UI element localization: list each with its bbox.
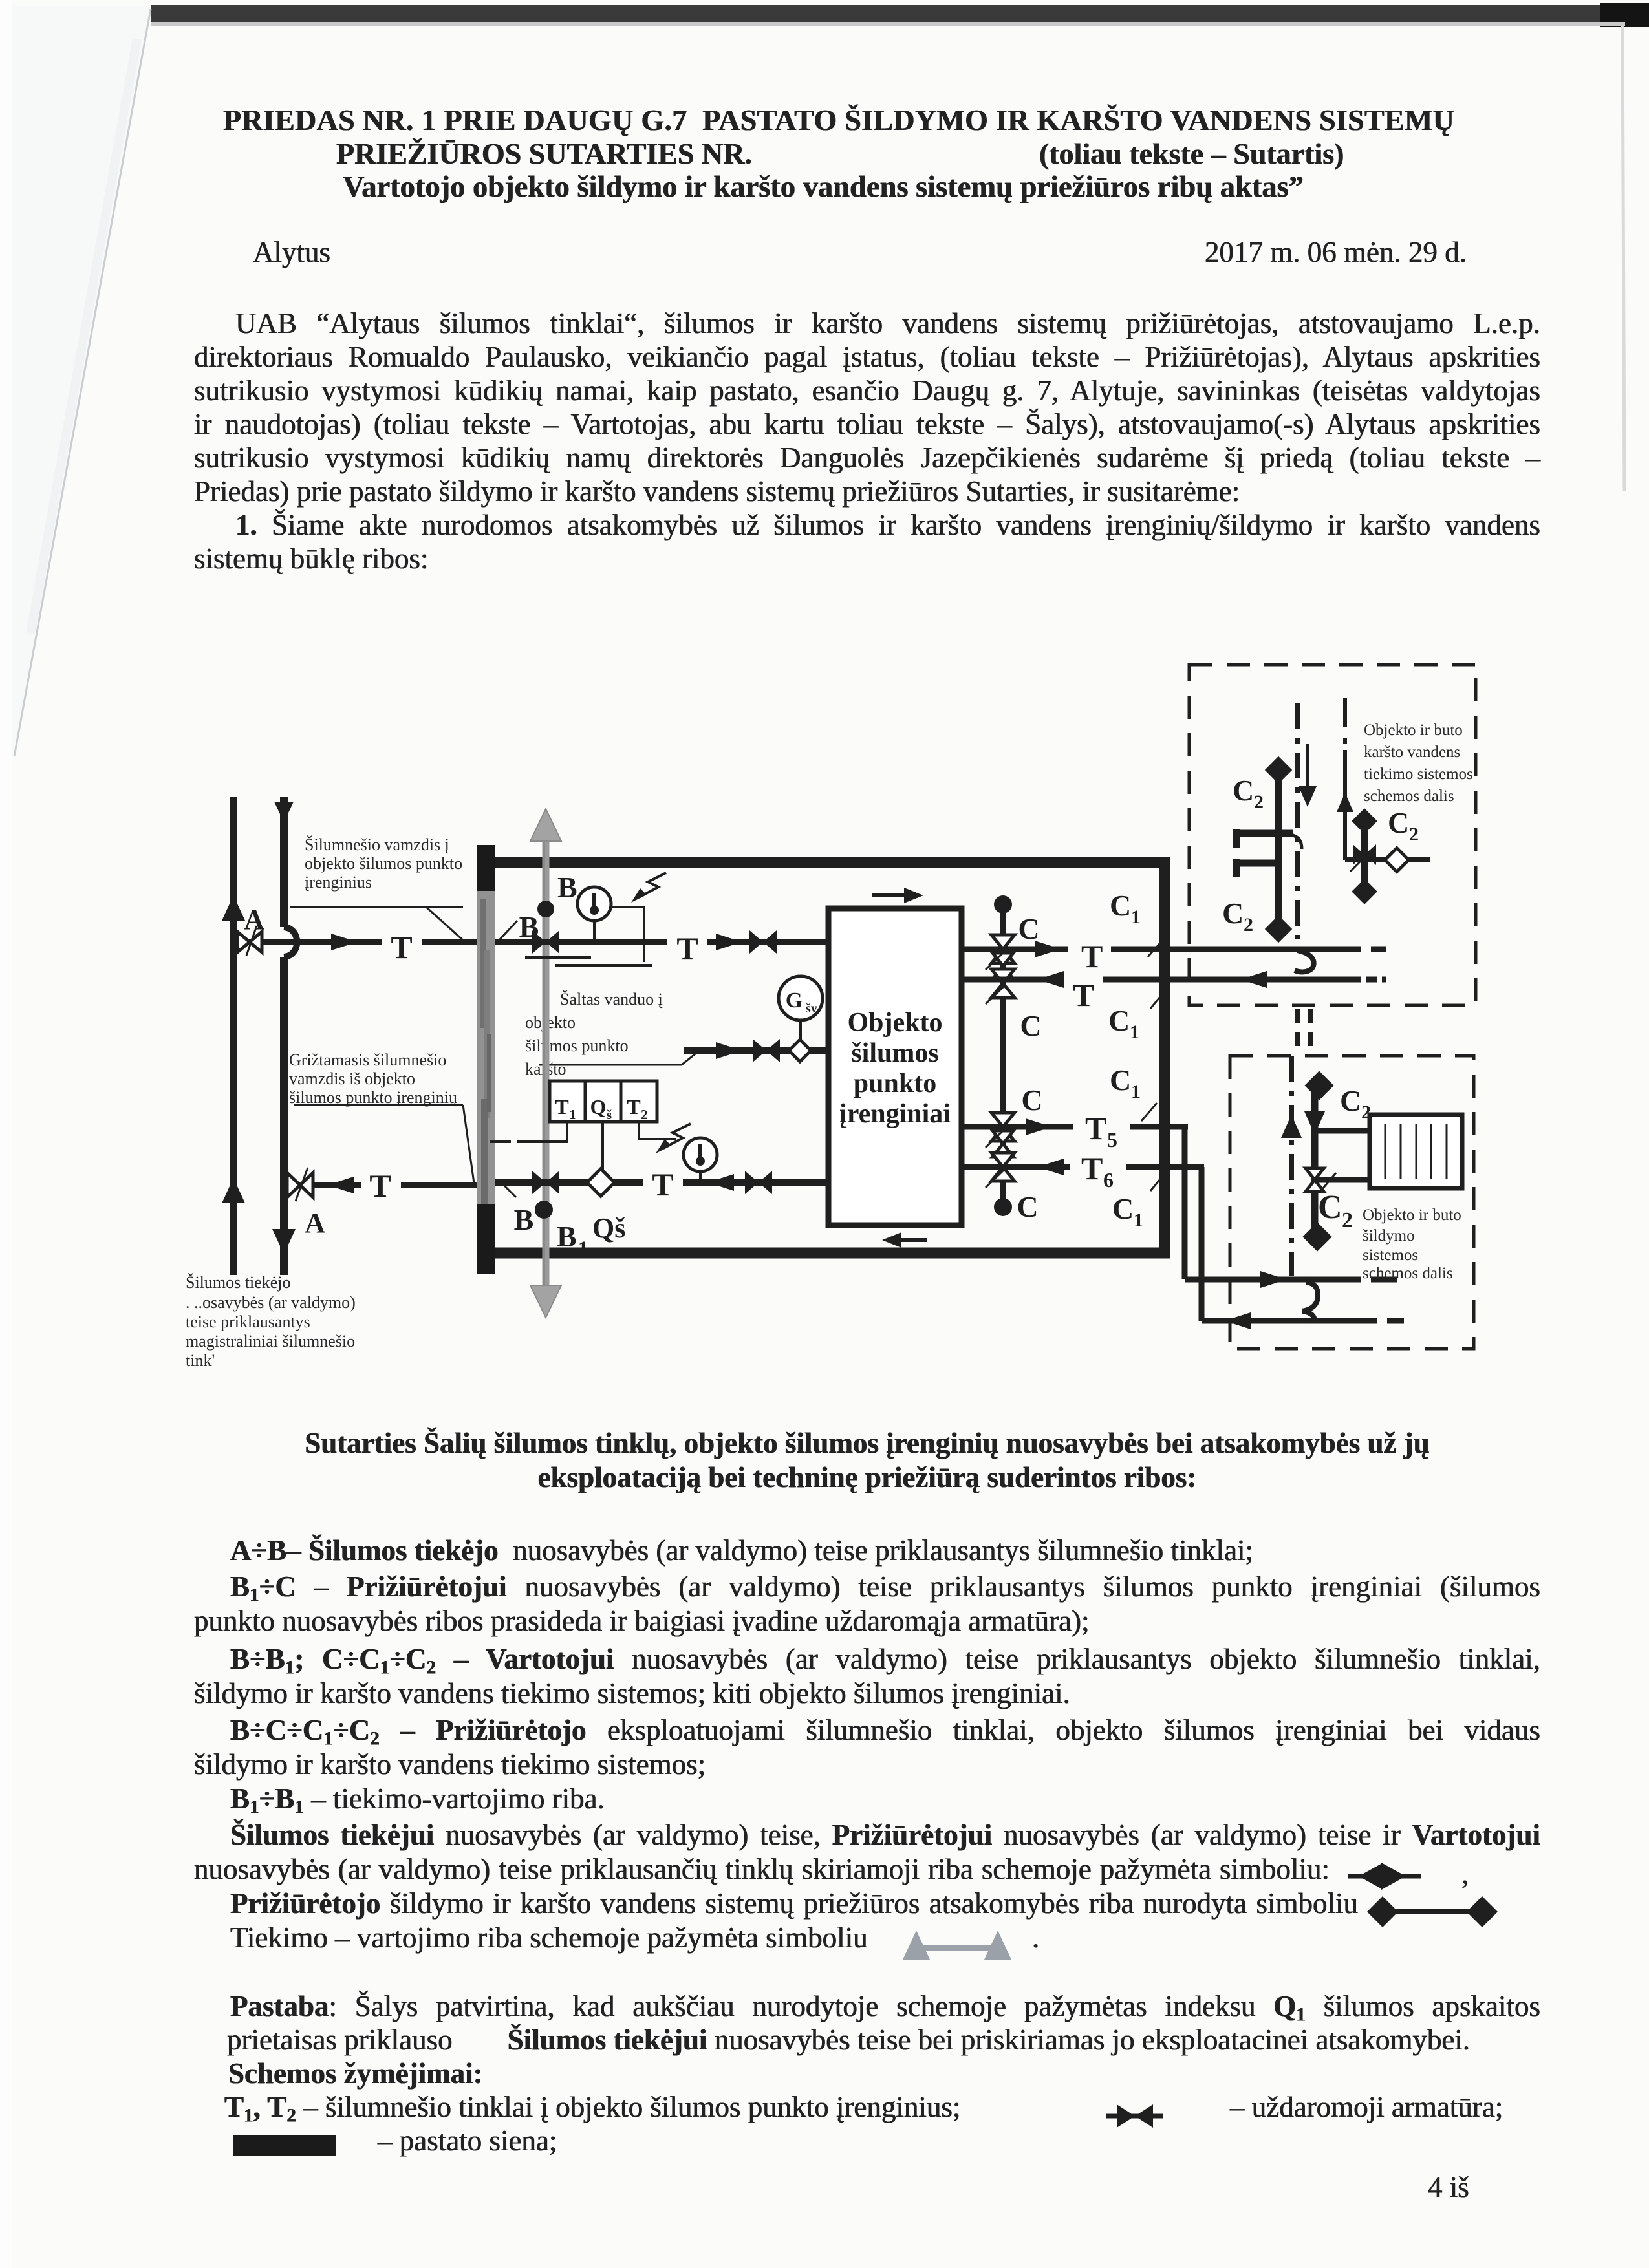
svg-text:2: 2 (1254, 791, 1264, 813)
svg-text:Šilumnešio vamzdis į: Šilumnešio vamzdis į (305, 835, 449, 854)
svg-text:5: 5 (1107, 1128, 1117, 1151)
svg-text:tink': tink' (186, 1351, 215, 1370)
svg-text:C: C (1318, 1189, 1342, 1226)
svg-text:T: T (676, 930, 698, 967)
svg-text:C: C (1233, 774, 1254, 807)
svg-text:įrenginius: įrenginius (305, 873, 372, 892)
svg-text:T: T (627, 1095, 640, 1118)
svg-text:Šilumos tiekėjo: Šilumos tiekėjo (186, 1273, 291, 1292)
svg-text:C: C (1222, 897, 1244, 930)
svg-text:šildymo: šildymo (1363, 1227, 1415, 1245)
svg-text:B: B (557, 871, 577, 904)
svg-text:šv: šv (806, 1001, 817, 1016)
svg-text:1: 1 (569, 1107, 576, 1122)
svg-text:vamzdis iš objekto: vamzdis iš objekto (289, 1069, 415, 1088)
svg-text:2: 2 (1409, 824, 1419, 845)
svg-text:. ..osavybės (ar valdymo): . ..osavybės (ar valdymo) (186, 1293, 356, 1312)
svg-text:tiekimo sistemos: tiekimo sistemos (1364, 765, 1473, 783)
svg-text:T: T (1081, 938, 1103, 974)
svg-text:įrenginiai: įrenginiai (839, 1099, 951, 1129)
svg-text:šilumos: šilumos (851, 1038, 938, 1068)
svg-text:C: C (1110, 1064, 1131, 1097)
svg-text:šilumos punkto: šilumos punkto (525, 1036, 629, 1055)
svg-text:2: 2 (1361, 1102, 1371, 1123)
svg-text:A: A (305, 1207, 325, 1239)
svg-text:1: 1 (1130, 1022, 1139, 1043)
svg-text:C: C (1108, 1004, 1130, 1037)
svg-text:Objekto: Objekto (848, 1008, 943, 1038)
svg-text:2: 2 (1244, 914, 1253, 936)
svg-text:schemos dalis: schemos dalis (1363, 1265, 1453, 1282)
svg-text:C: C (1340, 1084, 1361, 1117)
svg-text:magistraliniai šilumnešio: magistraliniai šilumnešio (186, 1332, 355, 1351)
svg-text:T: T (1081, 1150, 1103, 1186)
svg-text:1: 1 (1134, 1210, 1143, 1231)
svg-text:schemos dalis: schemos dalis (1364, 787, 1454, 805)
svg-text:punkto: punkto (854, 1069, 936, 1098)
svg-text:C: C (1017, 1190, 1038, 1223)
svg-text:Grižtamasis šilumnešio: Grižtamasis šilumnešio (289, 1051, 446, 1069)
svg-text:C: C (1388, 806, 1409, 839)
svg-text:T: T (555, 1095, 568, 1118)
svg-text:teise priklausantys: teise priklausantys (186, 1312, 310, 1331)
svg-text:Q: Q (590, 1095, 607, 1118)
svg-text:C: C (1110, 889, 1131, 922)
svg-text:Qš: Qš (592, 1212, 625, 1244)
svg-text:1: 1 (1131, 1081, 1141, 1102)
svg-text:T: T (369, 1168, 391, 1204)
svg-text:2: 2 (641, 1107, 648, 1122)
svg-text:B: B (514, 1203, 534, 1236)
svg-text:objekto: objekto (525, 1013, 576, 1032)
svg-text:C: C (1018, 912, 1039, 945)
svg-text:1: 1 (578, 1237, 588, 1259)
svg-text:2: 2 (1342, 1208, 1353, 1232)
svg-text:Šaltas vanduo į: Šaltas vanduo į (560, 990, 663, 1009)
svg-text:C: C (1112, 1192, 1134, 1225)
svg-text:T: T (652, 1166, 673, 1203)
svg-text:Objekto ir buto: Objekto ir buto (1364, 722, 1463, 739)
svg-text:C: C (1021, 1084, 1042, 1117)
svg-text:G: G (786, 989, 803, 1012)
svg-text:T: T (1073, 977, 1094, 1013)
svg-text:T: T (391, 929, 412, 965)
svg-text:B: B (557, 1220, 577, 1253)
svg-text:karšto vandens: karšto vandens (1364, 744, 1460, 761)
svg-text:A: A (244, 904, 264, 936)
svg-text:C: C (1020, 1009, 1041, 1042)
svg-text:Objekto ir buto: Objekto ir buto (1363, 1206, 1461, 1224)
svg-text:š: š (607, 1107, 612, 1122)
svg-text:6: 6 (1103, 1168, 1114, 1192)
svg-text:B: B (519, 910, 539, 943)
svg-text:sistemos: sistemos (1363, 1246, 1418, 1264)
svg-text:objekto šilumos punkto: objekto šilumos punkto (305, 854, 462, 873)
svg-text:1: 1 (1131, 906, 1141, 928)
svg-text:T: T (1085, 1110, 1106, 1146)
